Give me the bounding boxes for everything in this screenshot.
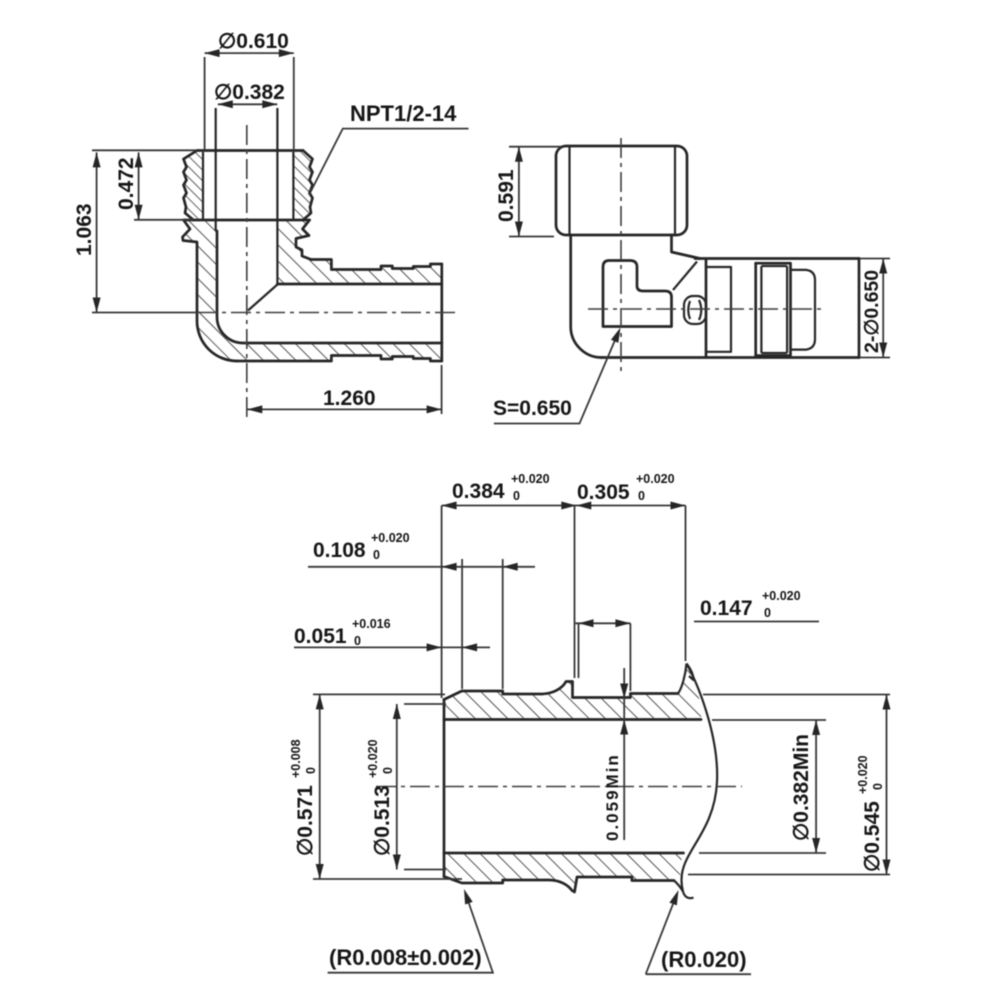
svg-text:0: 0	[304, 767, 318, 774]
svg-text:0: 0	[373, 548, 380, 562]
svg-text:+0.020: +0.020	[371, 531, 410, 545]
svg-text:+0.008: +0.008	[289, 739, 303, 778]
svg-text:∅0.545: ∅0.545	[861, 801, 884, 872]
svg-text:+0.020: +0.020	[366, 739, 380, 778]
svg-text:∅0.610: ∅0.610	[218, 30, 289, 53]
svg-text:2-∅0.650: 2-∅0.650	[861, 270, 883, 353]
svg-text:∅0.571: ∅0.571	[294, 785, 317, 856]
svg-text:1.260: 1.260	[323, 387, 376, 410]
svg-text:0: 0	[354, 634, 361, 648]
svg-text:(R0.008±0.002): (R0.008±0.002)	[329, 945, 482, 970]
svg-text:S=0.650: S=0.650	[493, 397, 572, 420]
svg-text:+0.020: +0.020	[856, 755, 870, 794]
svg-text:0.591: 0.591	[495, 169, 518, 222]
svg-text:+0.020: +0.020	[762, 589, 801, 603]
svg-text:1.063: 1.063	[73, 203, 96, 256]
svg-text:0: 0	[381, 767, 395, 774]
svg-text:0.472: 0.472	[115, 157, 138, 210]
svg-text:∅0.513: ∅0.513	[371, 785, 394, 856]
svg-text:0: 0	[638, 489, 645, 503]
svg-text:0.051: 0.051	[294, 625, 347, 648]
svg-text:∅0.382Min: ∅0.382Min	[790, 734, 813, 841]
svg-text:NPT1/2-14: NPT1/2-14	[350, 101, 457, 126]
svg-text:+0.020: +0.020	[511, 472, 550, 486]
svg-text:0.305: 0.305	[577, 481, 630, 504]
svg-text:(R0.020): (R0.020)	[661, 947, 747, 972]
svg-text:0: 0	[871, 783, 885, 790]
svg-text:0.147: 0.147	[700, 597, 753, 620]
svg-text:0.059Min: 0.059Min	[603, 753, 622, 841]
svg-text:0.108: 0.108	[313, 539, 366, 562]
svg-text:0: 0	[513, 489, 520, 503]
svg-text:+0.020: +0.020	[636, 472, 675, 486]
svg-text:∅0.382: ∅0.382	[214, 81, 285, 104]
svg-text:0.384: 0.384	[452, 480, 505, 503]
svg-text:0: 0	[764, 606, 771, 620]
svg-text:+0.016: +0.016	[352, 617, 391, 631]
